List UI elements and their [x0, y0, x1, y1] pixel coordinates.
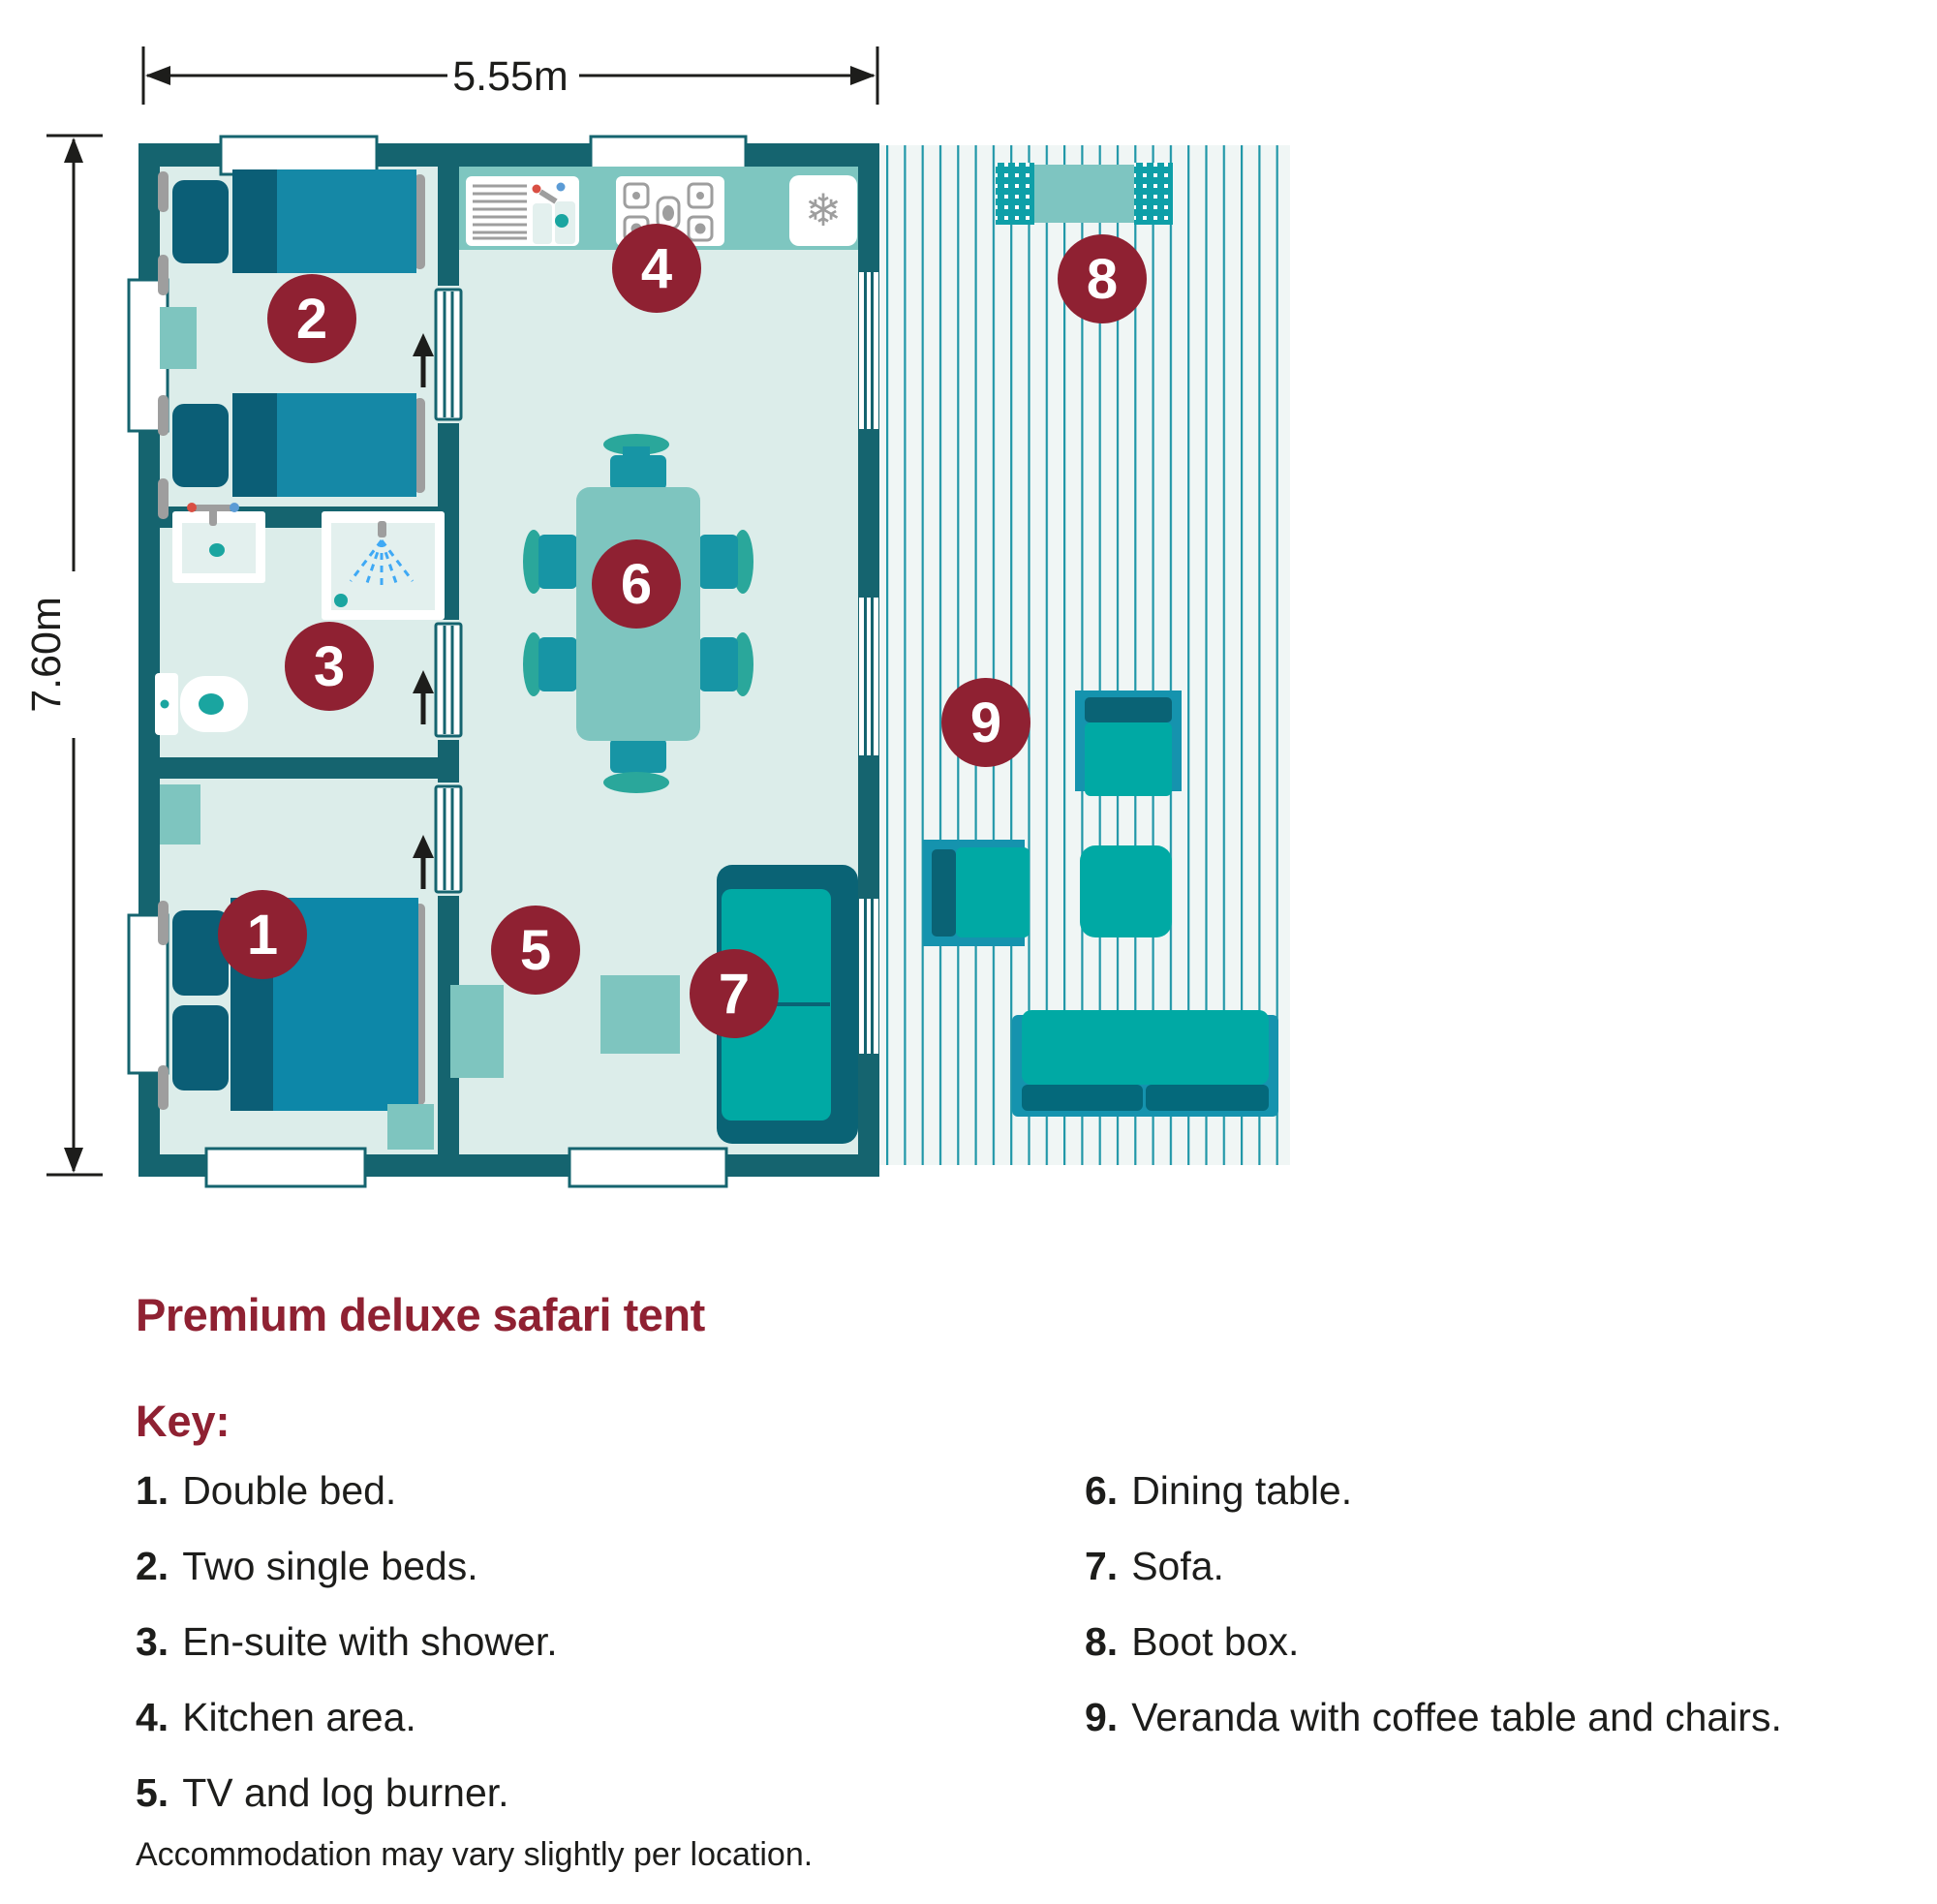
svg-text:3: 3	[314, 635, 345, 698]
fridge-icon: ❄	[789, 175, 857, 246]
window-right-upper	[859, 272, 878, 429]
key-heading: Key:	[136, 1397, 231, 1447]
key-item-5: 5.TV and log burner.	[136, 1770, 558, 1846]
svg-text:9: 9	[970, 691, 1001, 754]
bathroom-sink	[172, 503, 265, 583]
hot-tap-icon	[187, 503, 197, 512]
key-item-4: 4.Kitchen area.	[136, 1695, 558, 1770]
kitchen-sink-icon	[466, 176, 579, 246]
key-item-2: 2.Two single beds.	[136, 1544, 558, 1619]
key-item-1: 1.Double bed.	[136, 1468, 558, 1544]
floorplan-page: 5.55m 7.60m	[0, 0, 1937, 1904]
window-right-lower	[859, 899, 878, 1054]
key-list-right: 6.Dining table. 7.Sofa. 8.Boot box. 9.Ve…	[1085, 1468, 1782, 1770]
badge-5: 5	[491, 906, 580, 995]
dining-chair-right-2	[699, 632, 753, 696]
badge-4: 4	[612, 224, 701, 313]
tv	[450, 985, 504, 1078]
dining-chair-right-1	[699, 530, 753, 594]
shower	[322, 511, 445, 620]
badge-2: 2	[267, 274, 356, 363]
bedroom-1-nightstand	[160, 784, 200, 845]
shower-head-icon	[378, 521, 386, 537]
pillow	[172, 404, 229, 487]
svg-text:6: 6	[621, 553, 652, 616]
badge-3: 3	[285, 622, 374, 711]
veranda-armchair-top	[1075, 691, 1182, 796]
badge-7: 7	[690, 949, 779, 1038]
key-item-6: 6.Dining table.	[1085, 1468, 1782, 1544]
page-title: Premium deluxe safari tent	[136, 1288, 705, 1341]
toilet	[155, 673, 248, 735]
height-label: 7.60m	[23, 597, 70, 713]
badge-1: 1	[218, 890, 307, 979]
badge-9: 9	[941, 678, 1030, 767]
svg-text:4: 4	[641, 237, 672, 300]
log-burner	[600, 975, 680, 1054]
coffee-table	[1080, 845, 1172, 937]
cold-tap-icon	[230, 503, 239, 512]
key-item-3: 3.En-suite with shower.	[136, 1619, 558, 1695]
svg-text:5: 5	[520, 919, 551, 982]
dining-chair-top	[603, 434, 669, 490]
veranda-bench	[1012, 1010, 1278, 1117]
height-dimension: 7.60m	[23, 136, 103, 1175]
width-label: 5.55m	[452, 53, 569, 100]
snowflake-icon: ❄	[805, 185, 843, 235]
bedroom-2-nightstand	[160, 307, 197, 369]
veranda-armchair-left	[923, 840, 1030, 946]
window-right-middle	[859, 598, 878, 755]
pillow	[172, 180, 229, 263]
boot-box	[996, 163, 1173, 225]
key-item-8: 8.Boot box.	[1085, 1619, 1782, 1695]
key-item-7: 7.Sofa.	[1085, 1544, 1782, 1619]
window-bottom-left	[206, 1149, 365, 1186]
bed-end-bench	[387, 1104, 434, 1150]
svg-text:2: 2	[296, 288, 327, 351]
svg-text:7: 7	[719, 963, 750, 1026]
key-list-left: 1.Double bed. 2.Two single beds. 3.En-su…	[136, 1468, 558, 1846]
dining-chair-left-2	[523, 632, 577, 696]
width-dimension: 5.55m	[143, 46, 877, 105]
floor-plan: 5.55m 7.60m	[0, 0, 1356, 1211]
pillow	[172, 1005, 229, 1090]
svg-text:1: 1	[247, 904, 278, 967]
window-bottom-right	[569, 1149, 726, 1186]
key-item-9: 9.Veranda with coffee table and chairs.	[1085, 1695, 1782, 1770]
dining-chair-bottom	[603, 738, 669, 793]
footer-note: Accommodation may vary slightly per loca…	[136, 1836, 813, 1874]
svg-text:8: 8	[1087, 248, 1118, 311]
badge-8: 8	[1058, 234, 1147, 323]
window-top-left	[221, 137, 377, 174]
dining-chair-left-1	[523, 530, 577, 594]
badge-6: 6	[592, 539, 681, 629]
